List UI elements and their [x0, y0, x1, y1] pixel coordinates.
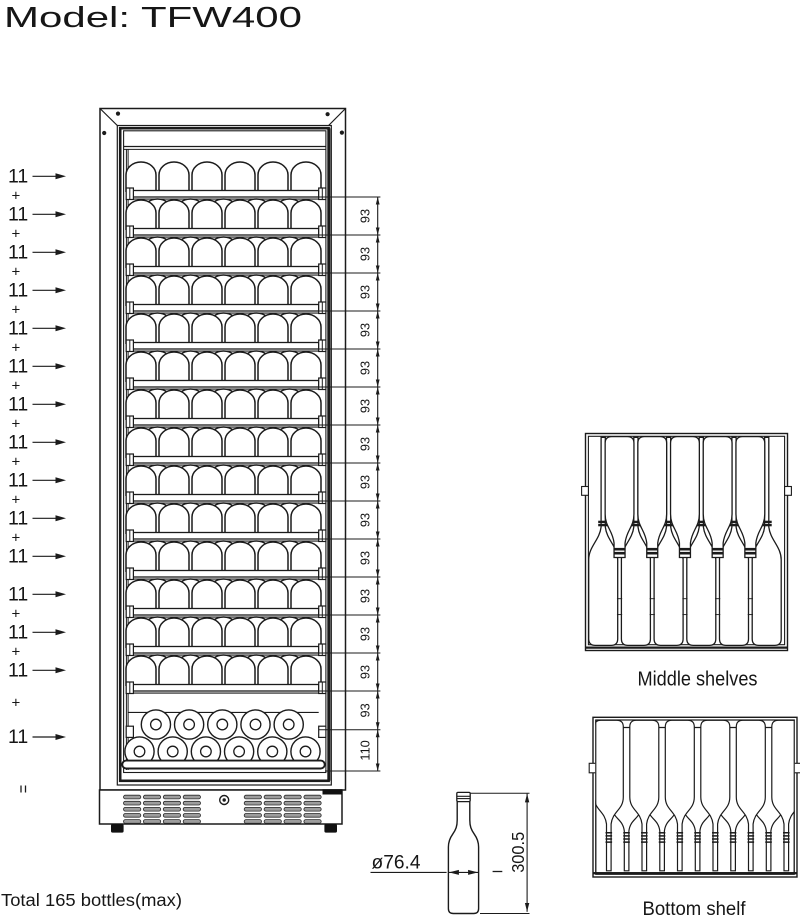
- svg-text:93: 93: [358, 703, 373, 717]
- svg-text:11: 11: [8, 660, 28, 682]
- svg-text:11: 11: [8, 318, 28, 340]
- svg-text:+: +: [12, 188, 21, 205]
- svg-text:93: 93: [358, 247, 373, 261]
- svg-text:11: 11: [8, 432, 28, 454]
- svg-text:11: 11: [8, 584, 28, 606]
- svg-text:93: 93: [358, 285, 373, 299]
- svg-text:+: +: [12, 226, 21, 243]
- svg-text:93: 93: [358, 513, 373, 527]
- svg-text:ø76.4: ø76.4: [372, 853, 421, 874]
- svg-text:11: 11: [8, 508, 28, 530]
- svg-text:+: +: [12, 606, 21, 623]
- svg-text:+: +: [12, 378, 21, 395]
- svg-text:93: 93: [358, 361, 373, 375]
- svg-text:93: 93: [358, 589, 373, 603]
- svg-text:93: 93: [358, 627, 373, 641]
- svg-text:300.5: 300.5: [508, 832, 528, 873]
- svg-text:93: 93: [358, 475, 373, 489]
- svg-text:11: 11: [8, 166, 28, 188]
- svg-text:+: +: [12, 644, 21, 661]
- svg-text:93: 93: [358, 399, 373, 413]
- svg-text:Total 165 bottles(max): Total 165 bottles(max): [1, 890, 182, 910]
- svg-text:+: +: [12, 492, 21, 509]
- svg-text:11: 11: [8, 394, 28, 416]
- svg-text:Bottom shelf: Bottom shelf: [643, 898, 747, 917]
- svg-text:11: 11: [8, 546, 28, 568]
- svg-text:11: 11: [8, 280, 28, 302]
- svg-text:Middle shelves: Middle shelves: [638, 669, 758, 691]
- svg-text:+: +: [12, 302, 21, 319]
- svg-text:+: +: [12, 695, 21, 712]
- svg-text:11: 11: [8, 726, 28, 748]
- svg-text:11: 11: [8, 356, 28, 378]
- svg-text:+: +: [12, 416, 21, 433]
- svg-text:+: +: [12, 264, 21, 281]
- svg-text:11: 11: [8, 622, 28, 644]
- svg-text:93: 93: [358, 665, 373, 679]
- svg-text:93: 93: [358, 551, 373, 565]
- svg-text:110: 110: [358, 740, 373, 760]
- svg-text:93: 93: [358, 437, 373, 451]
- svg-text:+: +: [12, 530, 21, 547]
- svg-text:+: +: [12, 340, 21, 357]
- svg-text:93: 93: [358, 323, 373, 337]
- svg-text:11: 11: [8, 204, 28, 226]
- svg-text:+: +: [12, 454, 21, 471]
- svg-text:11: 11: [8, 470, 28, 492]
- svg-text:11: 11: [8, 242, 28, 264]
- svg-text:Model: TFW400: Model: TFW400: [4, 2, 302, 34]
- svg-text:93: 93: [358, 209, 373, 223]
